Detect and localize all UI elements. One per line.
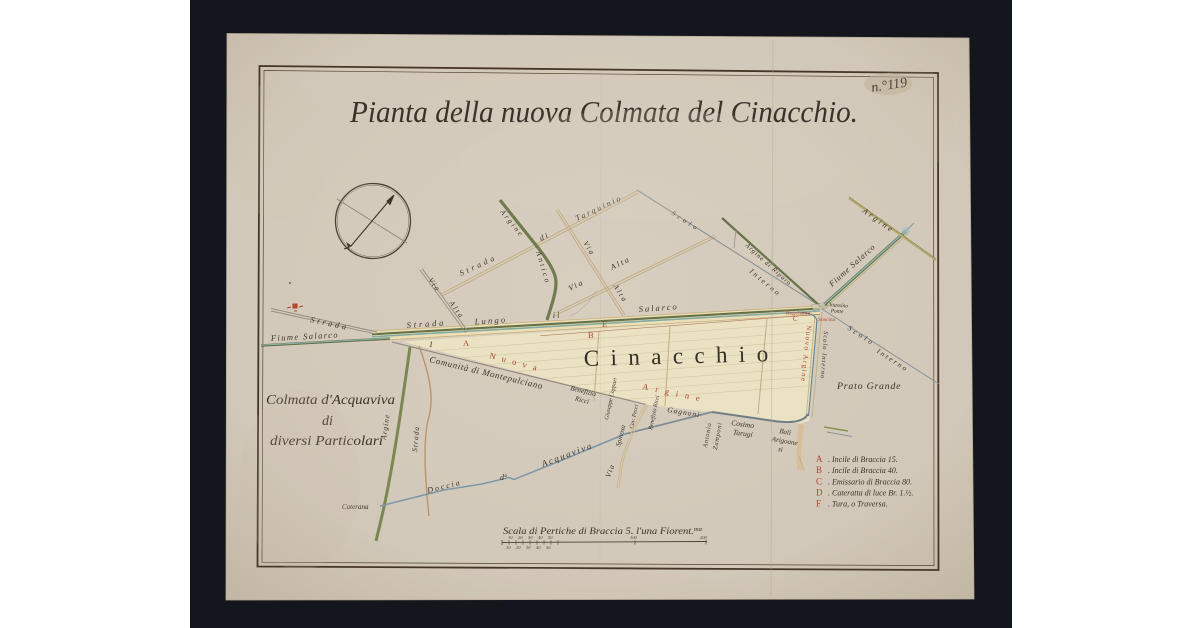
svg-text:. Cateratta di luce Br. 1.½.: . Cateratta di luce Br. 1.½. (828, 489, 913, 498)
svg-text:Ponte: Ponte (829, 308, 844, 315)
svg-text:A: A (463, 338, 470, 348)
svg-text:. Tura, o Traversa.: . Tura, o Traversa. (828, 500, 888, 509)
svg-text:20: 20 (518, 535, 523, 540)
svg-text:1: 1 (429, 340, 433, 349)
svg-text:E: E (602, 319, 607, 329)
svg-text:d°: d° (500, 473, 508, 482)
svg-text:40: 40 (536, 545, 541, 550)
svg-text:Cinacchio: Cinacchio (583, 341, 780, 371)
svg-text:20: 20 (516, 545, 521, 550)
svg-text:Scala di Pertiche di Braccia 5: Scala di Pertiche di Braccia 5. l'una Fi… (503, 527, 702, 537)
svg-text:B: B (816, 465, 822, 475)
svg-text:Regolatore: Regolatore (786, 311, 811, 317)
svg-text:30: 30 (526, 545, 531, 550)
svg-text:200: 200 (700, 535, 708, 540)
svg-text:. Incile di Braccia 40.: . Incile di Braccia 40. (828, 466, 898, 475)
svg-text:B: B (588, 330, 594, 340)
svg-text:. Emissario di Braccia 80.: . Emissario di Braccia 80. (828, 478, 912, 487)
svg-text:Soscina: Soscina (818, 317, 836, 323)
svg-text:. Incile di Braccia 15.: . Incile di Braccia 15. (828, 455, 898, 464)
svg-text:C: C (816, 477, 822, 487)
svg-text:50: 50 (546, 545, 551, 550)
svg-text:C: C (793, 315, 798, 323)
svg-text:D: D (816, 488, 823, 498)
svg-text:10: 10 (506, 545, 511, 550)
svg-text:50: 50 (548, 535, 553, 540)
svg-text:40: 40 (538, 535, 543, 540)
svg-text:10: 10 (508, 535, 513, 540)
svg-text:F: F (816, 499, 821, 509)
svg-text:30: 30 (528, 535, 533, 540)
svg-text:Prato Grande: Prato Grande (836, 381, 901, 392)
svg-text:100: 100 (630, 535, 638, 540)
svg-text:A: A (816, 454, 823, 464)
